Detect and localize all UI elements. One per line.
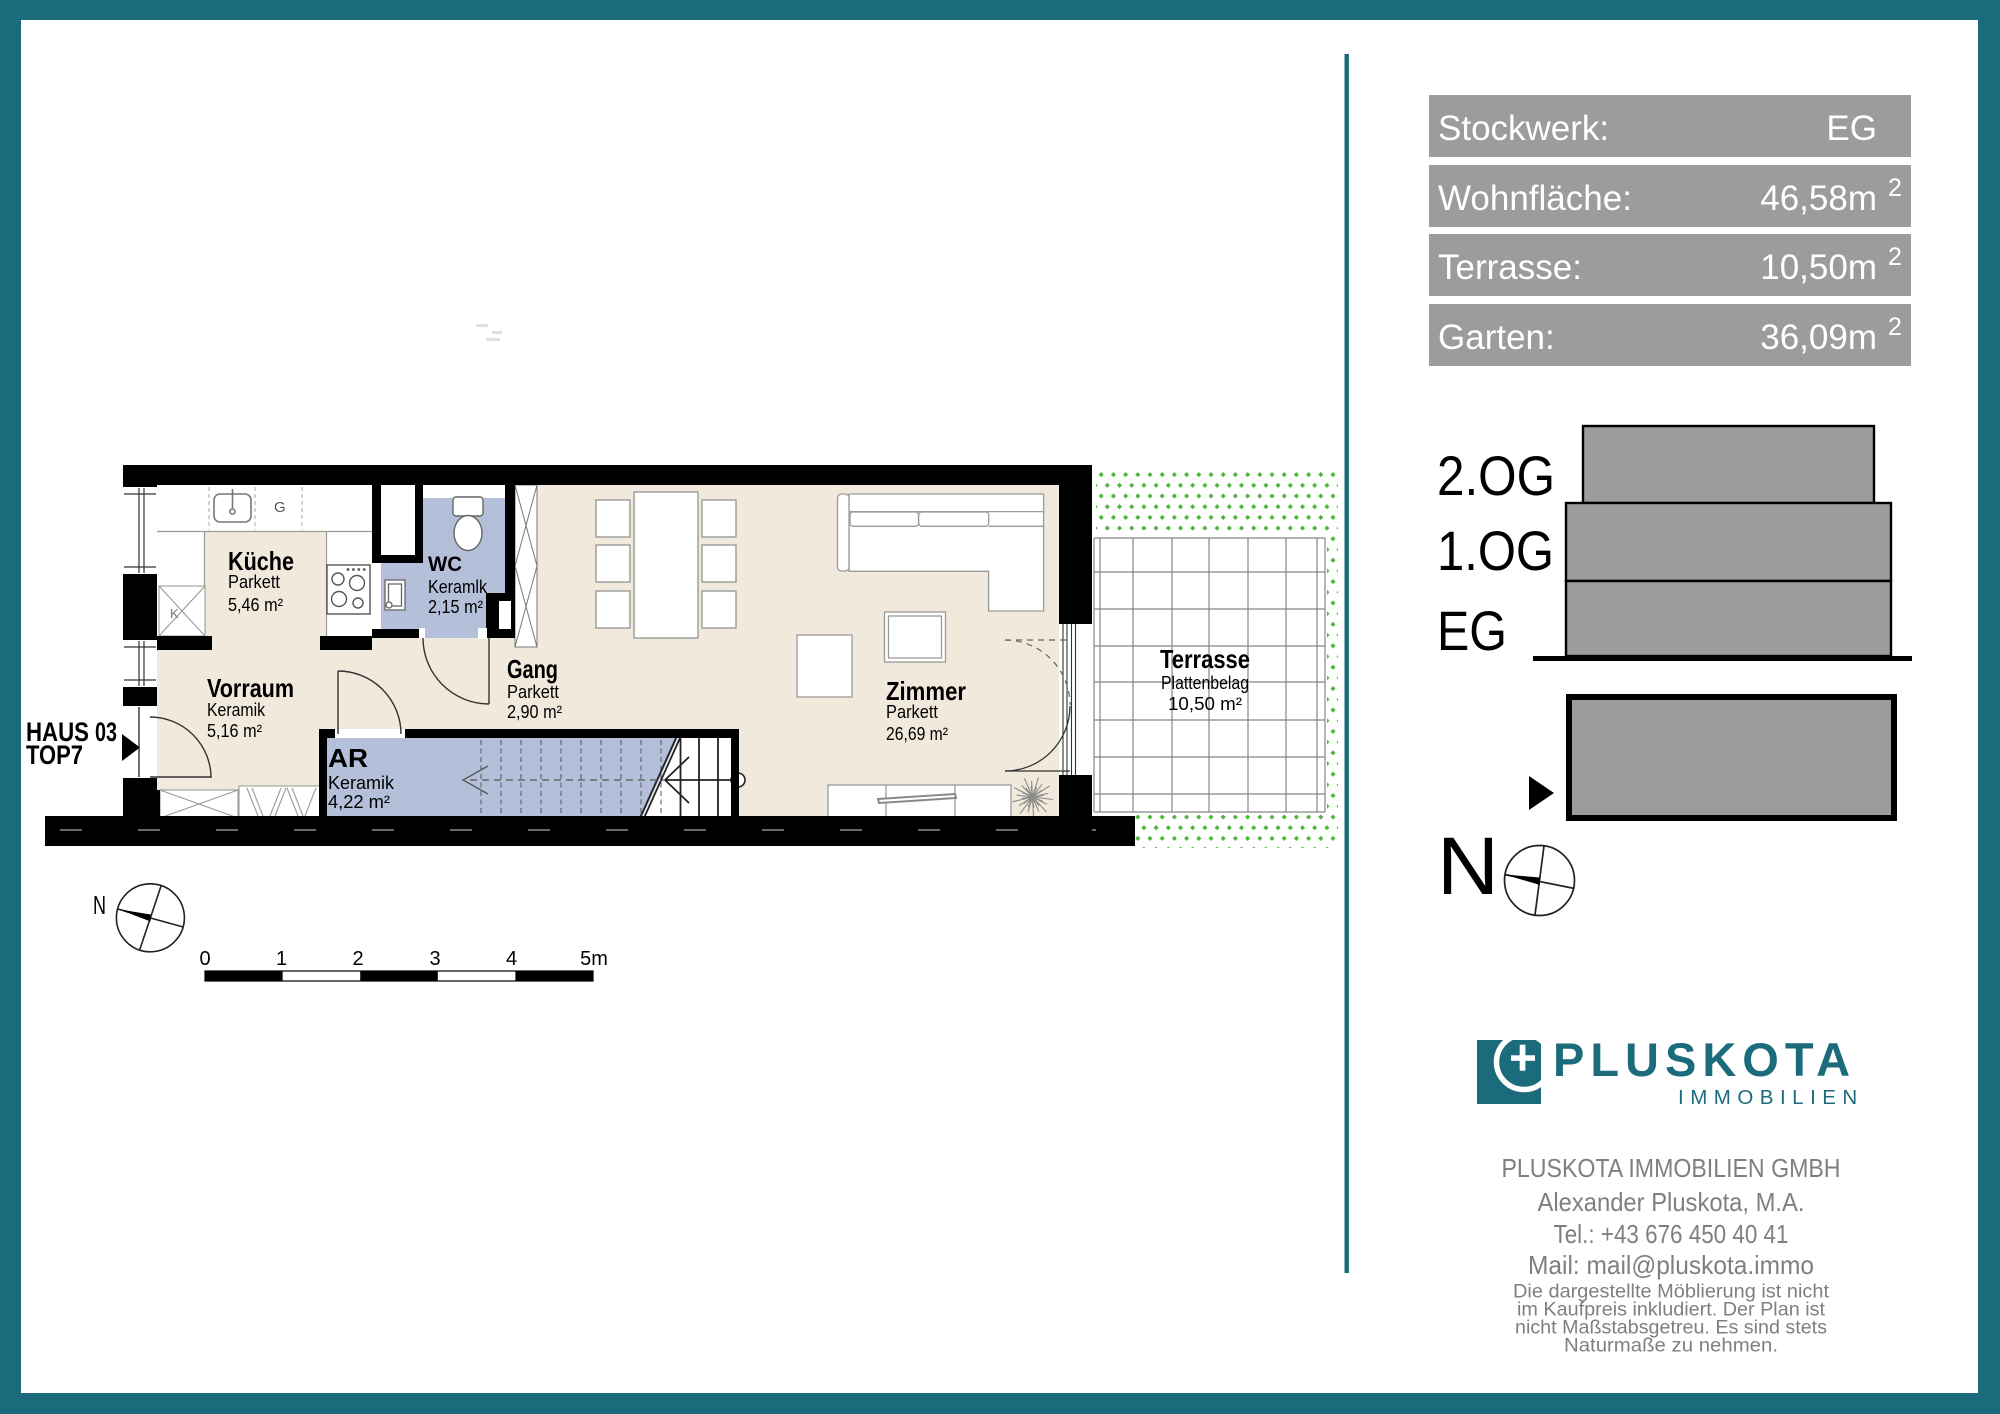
svg-text:PLUSKOTA: PLUSKOTA [1553, 1033, 1856, 1086]
svg-text:Stockwerk:: Stockwerk: [1438, 109, 1609, 148]
svg-text:IMMOBILIEN: IMMOBILIEN [1678, 1086, 1864, 1109]
svg-text:Tel.: +43 676 450 40 41: Tel.: +43 676 450 40 41 [1554, 1219, 1789, 1249]
svg-text:Keramik: Keramik [207, 700, 266, 720]
svg-text:Mail: mail@pluskota.immo: Mail: mail@pluskota.immo [1528, 1250, 1814, 1280]
svg-text:2: 2 [1888, 313, 1902, 341]
svg-text:03: 03 [95, 717, 117, 747]
svg-text:Wohnfläche:: Wohnfläche: [1438, 179, 1632, 218]
svg-text:1: 1 [276, 948, 287, 970]
svg-text:2,90 m²: 2,90 m² [507, 702, 562, 722]
svg-text:Keramik: Keramik [328, 773, 395, 793]
svg-text:46,58m: 46,58m [1760, 179, 1877, 218]
svg-text:Terrasse:: Terrasse: [1438, 248, 1582, 287]
svg-text:4: 4 [506, 948, 517, 970]
svg-text:N: N [93, 890, 106, 920]
svg-text:1.OG: 1.OG [1437, 519, 1554, 582]
svg-text:0: 0 [199, 948, 210, 970]
svg-text:Plattenbelag: Plattenbelag [1161, 673, 1249, 693]
svg-text:Garten:: Garten: [1438, 318, 1555, 357]
svg-text:10,50m: 10,50m [1760, 248, 1877, 287]
svg-text:26,69 m²: 26,69 m² [886, 724, 948, 744]
svg-text:5,16 m²: 5,16 m² [207, 721, 262, 741]
svg-text:Parkett: Parkett [228, 572, 280, 592]
svg-text:EG: EG [1437, 599, 1507, 662]
svg-text:Naturmaße zu nehmen.: Naturmaße zu nehmen. [1564, 1335, 1778, 1357]
svg-text:Parkett: Parkett [507, 682, 559, 702]
svg-text:Terrasse: Terrasse [1160, 644, 1250, 674]
svg-text:36,09m: 36,09m [1760, 318, 1877, 357]
svg-text:5m: 5m [580, 948, 608, 970]
svg-text:N: N [1437, 821, 1499, 912]
svg-text:Keramlk: Keramlk [428, 577, 488, 597]
svg-text:Vorraum: Vorraum [207, 673, 294, 703]
svg-text:2,15 m²: 2,15 m² [428, 597, 483, 617]
svg-text:PLUSKOTA IMMOBILIEN GMBH: PLUSKOTA IMMOBILIEN GMBH [1502, 1153, 1841, 1183]
svg-text:Alexander Pluskota, M.A.: Alexander Pluskota, M.A. [1538, 1187, 1805, 1217]
svg-text:2.OG: 2.OG [1437, 444, 1555, 507]
svg-text:4,22 m²: 4,22 m² [328, 792, 390, 812]
svg-text:10,50 m²: 10,50 m² [1168, 694, 1242, 714]
svg-text:2: 2 [1888, 174, 1902, 202]
svg-text:G: G [274, 499, 286, 516]
svg-text:Gang: Gang [507, 654, 558, 684]
svg-text:WC: WC [428, 553, 462, 576]
svg-text:3: 3 [429, 948, 440, 970]
svg-text:TOP7: TOP7 [26, 740, 83, 770]
svg-text:Parkett: Parkett [886, 702, 938, 722]
svg-text:5,46 m²: 5,46 m² [228, 595, 283, 615]
svg-text:EG: EG [1826, 109, 1877, 148]
svg-text:2: 2 [1888, 243, 1902, 271]
svg-text:2: 2 [352, 948, 363, 970]
svg-text:K: K [170, 606, 179, 621]
svg-text:AR: AR [328, 743, 368, 773]
